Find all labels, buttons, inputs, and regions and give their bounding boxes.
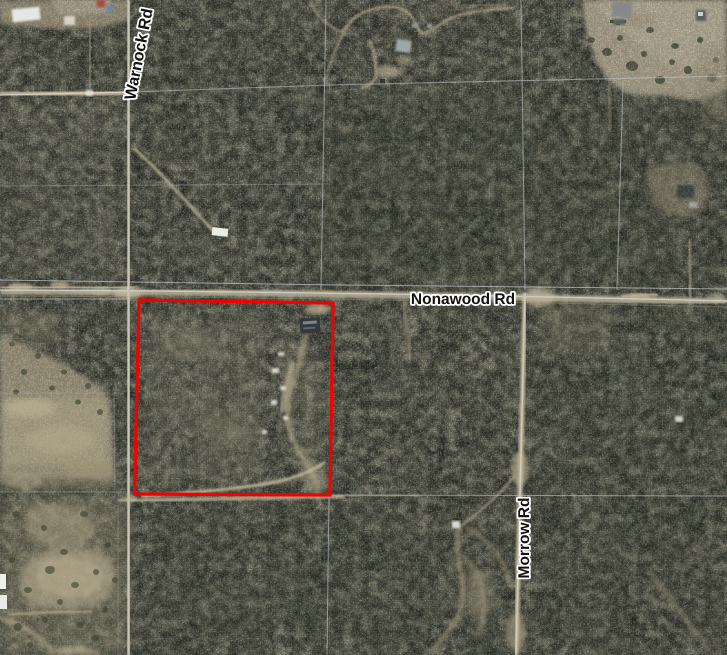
svg-text:Morrow Rd: Morrow Rd xyxy=(516,498,533,579)
svg-text:Nonawood Rd: Nonawood Rd xyxy=(411,291,515,308)
